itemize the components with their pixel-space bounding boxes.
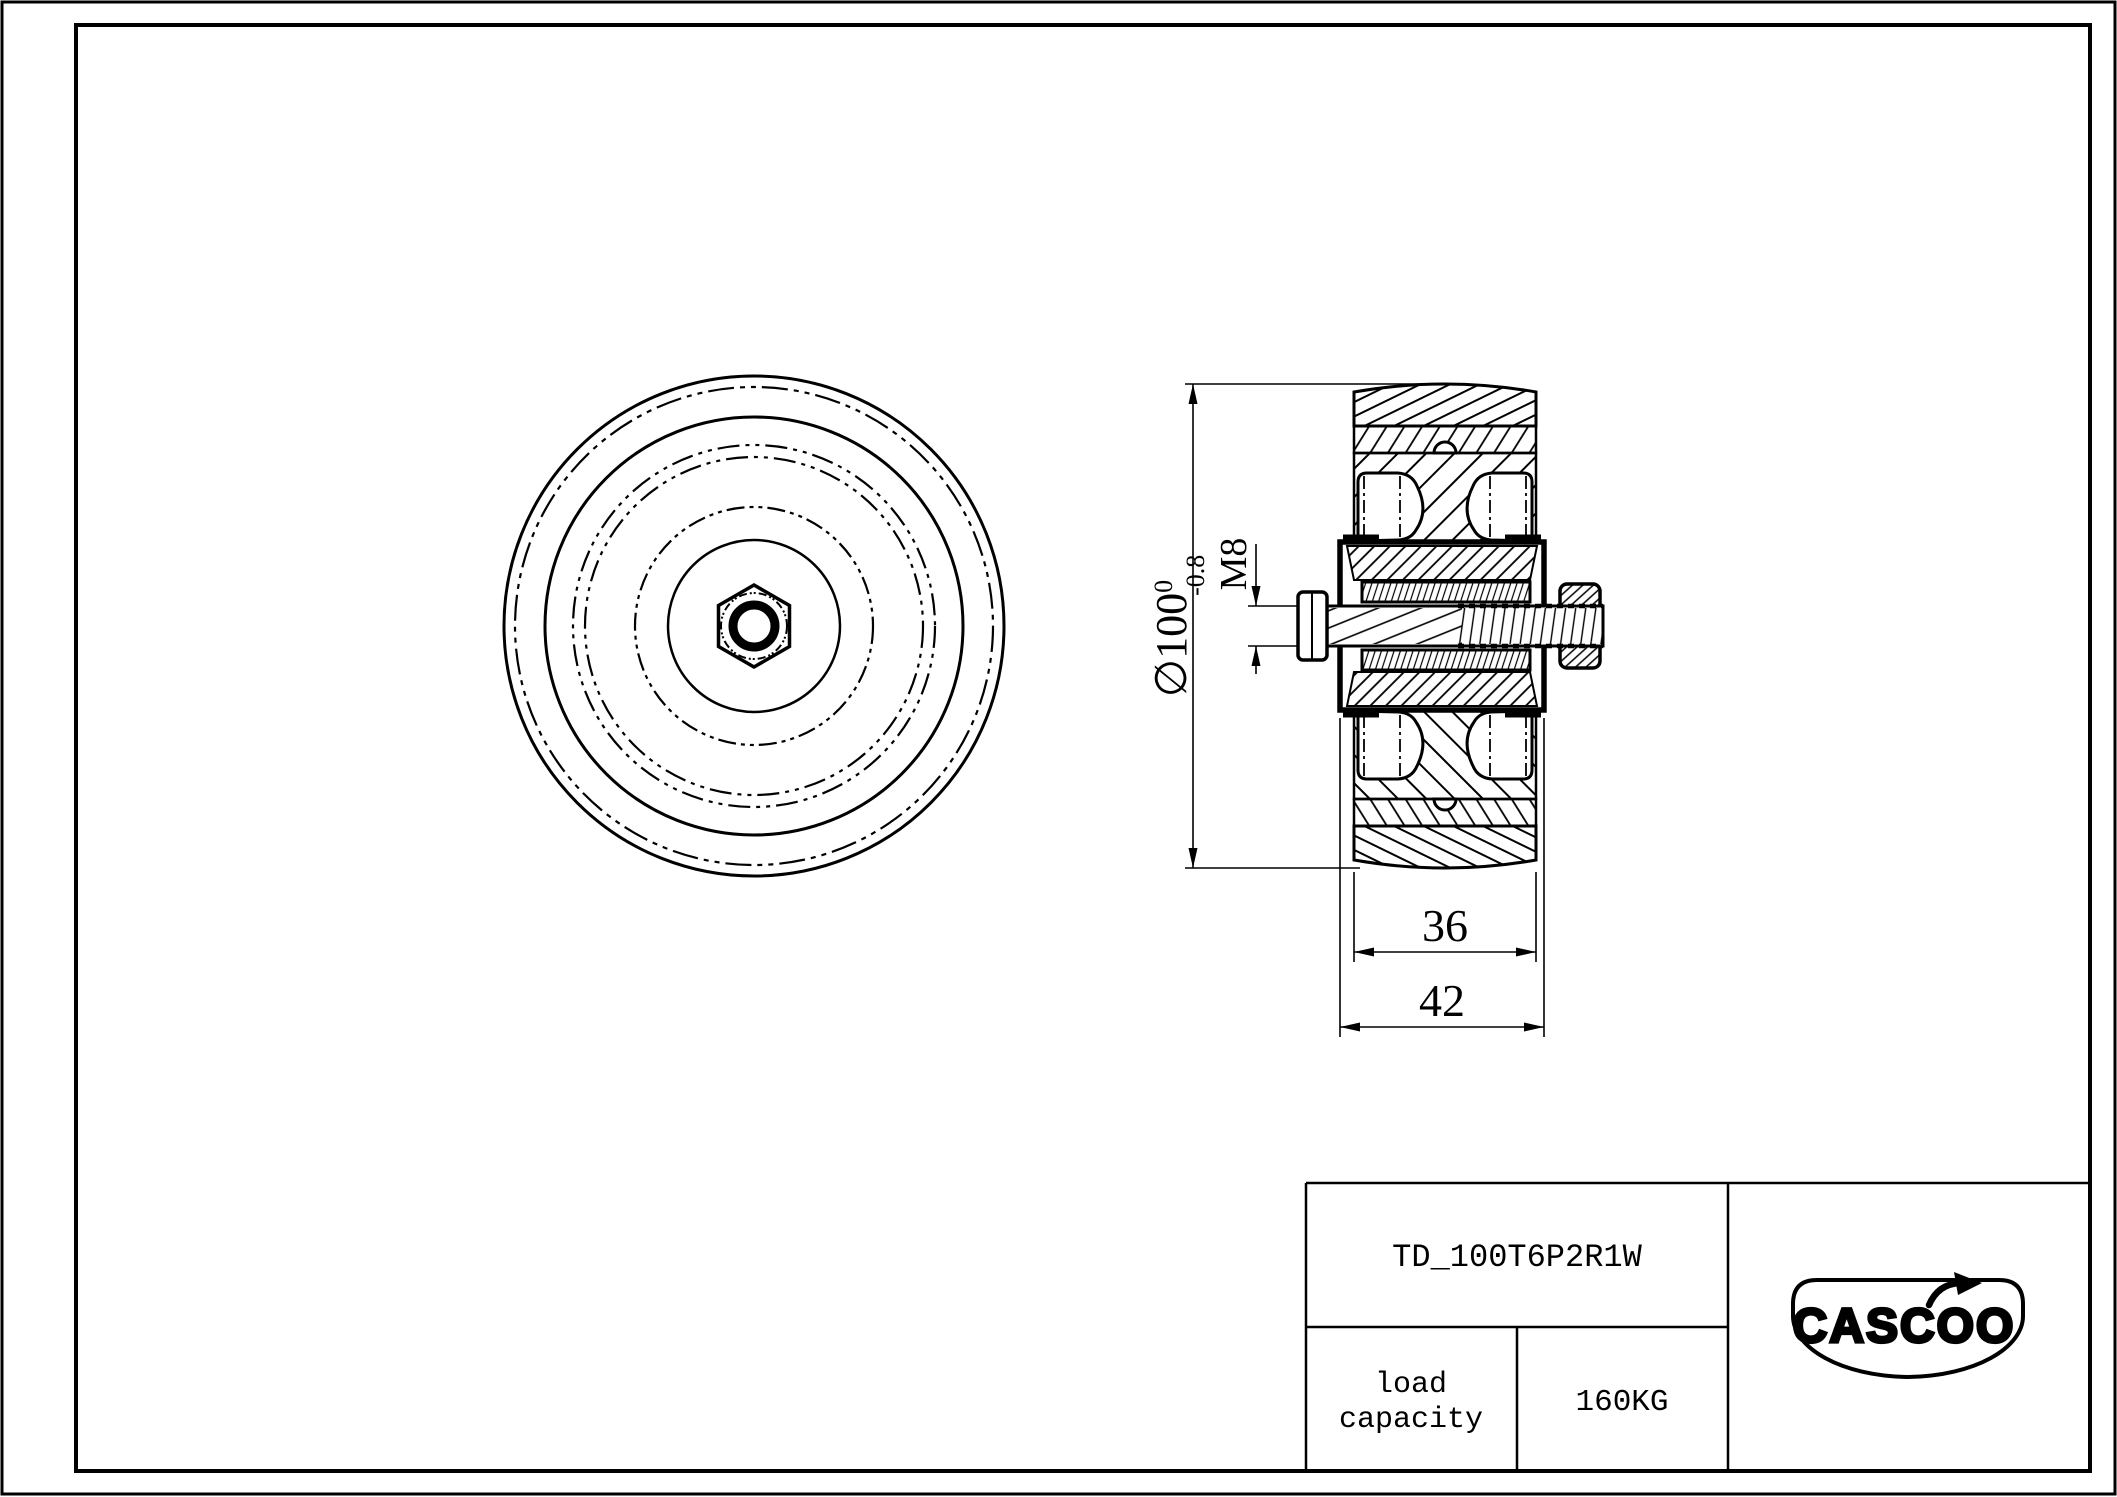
outer-border xyxy=(2,2,2115,1494)
load-capacity-label-line2: capacity xyxy=(1339,1403,1483,1437)
hub-section-top xyxy=(1347,546,1537,580)
wheel-bottom-half xyxy=(1354,710,1536,868)
tread-section xyxy=(1354,384,1536,426)
spoke-window-left xyxy=(1358,473,1423,541)
part-number: TD_100T6P2R1W xyxy=(1392,1239,1642,1276)
mold-notch xyxy=(1434,442,1456,453)
hub-section-bottom xyxy=(1347,672,1537,706)
dimension-thread-label: M8 xyxy=(1213,538,1255,591)
dimension-hub-width-label: 42 xyxy=(1419,975,1465,1026)
load-capacity-value: 160KG xyxy=(1575,1385,1668,1420)
shaft-shading xyxy=(1328,608,1462,644)
brand-logo-text: CASCOO xyxy=(1793,1300,2016,1353)
cascoo-logo: CASCOO xyxy=(1793,1272,2023,1377)
wheel-top-half xyxy=(1354,384,1536,542)
roller-bearing-bottom xyxy=(1362,650,1530,670)
dimension-tread-width-label: 36 xyxy=(1422,900,1468,951)
roller-bearing-top xyxy=(1362,582,1530,602)
engineering-drawing: ∅1000-0.8 M8 36 42 TD_100T6P2R1W load ca… xyxy=(0,0,2117,1497)
spoke-window-right xyxy=(1467,473,1532,541)
thread-zone xyxy=(1458,608,1602,644)
load-capacity-label-line1: load xyxy=(1375,1368,1447,1402)
drawing-sheet: ∅1000-0.8 M8 36 42 TD_100T6P2R1W load ca… xyxy=(0,0,2117,1497)
